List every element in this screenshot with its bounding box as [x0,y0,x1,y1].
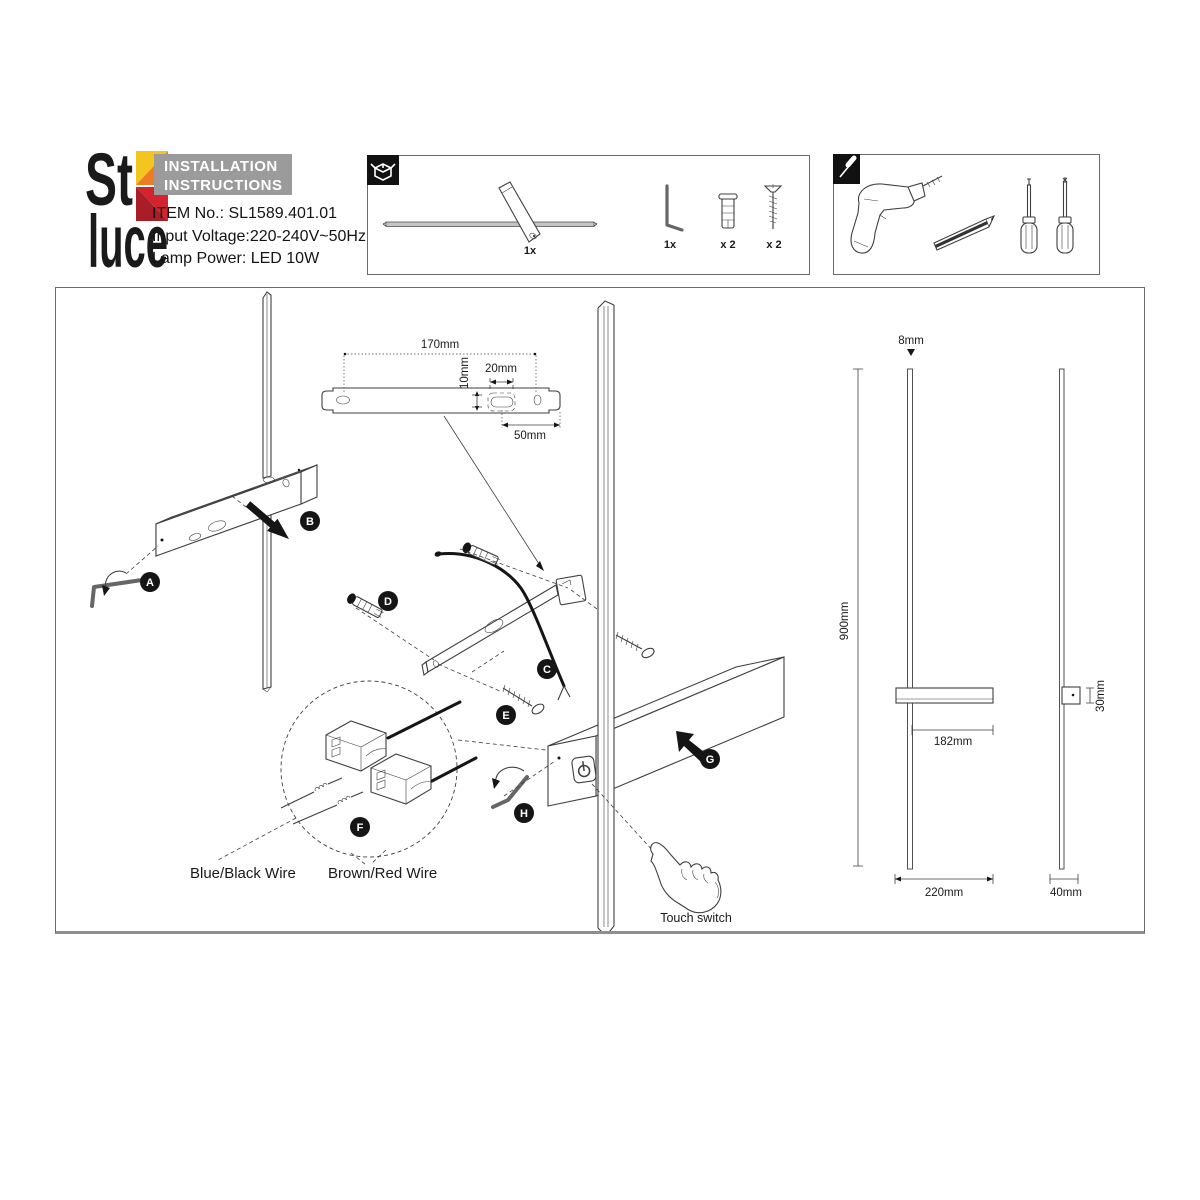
dim-hole-width: 20mm [485,363,517,375]
dim-base-height: 30mm [1095,680,1107,712]
step-marker-h: H [514,803,534,823]
step-marker-d: D [378,591,398,611]
hex-key-illustration [667,186,682,230]
dim-arm-length: 182mm [934,736,972,748]
bracket-top-view [322,388,560,413]
stripped-wires [281,778,363,824]
step-marker-c: C [537,659,557,679]
instruction-sheet: St luce INSTALLATION INSTRUCTIONS ITEM N… [0,0,1200,1200]
svg-text:F: F [357,822,364,834]
wire-connector [326,721,386,771]
installation-diagram: A B 170mm 10mm 20mm [56,288,1144,931]
svg-text:A: A [146,577,154,589]
dim-hole-to-end: 50mm [514,430,546,442]
lamp-base-housing-left [156,465,317,556]
lamp-qty: 1x [524,245,537,257]
svg-text:G: G [706,754,715,766]
hex-key-qty: 1x [664,239,677,251]
tools-required-box [833,154,1100,275]
svg-text:D: D [384,596,392,608]
pencil-illustration [934,216,994,250]
screw-qty: x 2 [766,239,781,251]
svg-text:B: B [306,516,314,528]
package-contents-drawing: 1x 1x x 2 x 2 [368,156,809,274]
item-number: ITEM No.: SL1589.401.01 [152,203,366,226]
title-banner: INSTALLATION INSTRUCTIONS [154,154,292,195]
step-marker-f: F [350,817,370,837]
wire-label-blue-black: Blue/Black Wire [190,865,296,882]
hex-key-step-h [492,761,555,807]
package-icon [367,155,399,185]
dim-bracket-length: 170mm [421,339,459,351]
phillips-screwdriver-illustration [1057,177,1073,253]
title-line1: INSTALLATION [164,157,292,176]
bracket-dimensions: 170mm 10mm 20mm 50mm [344,339,560,571]
lamp-illustration [383,182,597,242]
mounting-screw-upper [616,632,656,660]
item-info: ITEM No.: SL1589.401.01 Input Voltage:22… [152,203,366,271]
lamp-power: Lamp Power: LED 10W [152,248,366,271]
flat-screwdriver-illustration [1021,179,1037,253]
wire-label-brown-red: Brown/Red Wire [328,865,437,882]
anchor-qty: x 2 [720,239,735,251]
front-view-dimensions: 8mm 900mm 182mm 220mm [839,335,993,899]
step-marker-a: A [140,572,160,592]
step-marker-e: E [496,705,516,725]
step-marker-g: G [700,749,720,769]
dim-side-width: 40mm [1050,887,1082,899]
pointing-hand [651,843,721,913]
dim-rod-diameter: 8mm [898,335,924,347]
svg-text:H: H [520,808,528,820]
screw-illustration [765,184,781,229]
dim-total-height: 900mm [839,602,851,640]
svg-text:C: C [543,664,551,676]
tools-drawing [834,155,1099,274]
side-view-dimensions: 30mm 40mm [1050,369,1107,899]
lamp-base-housing-right [548,657,784,806]
tools-icon [833,154,860,184]
wall-anchor-lower [345,592,385,620]
main-diagram-frame: A B 170mm 10mm 20mm [55,287,1145,934]
title-line2: INSTRUCTIONS [164,176,292,195]
dim-front-width: 220mm [925,887,963,899]
lamp-rod-center [598,301,614,931]
package-contents-box: 1x 1x x 2 x 2 [367,155,810,275]
drill-illustration [851,176,942,253]
bracket-iso-view [422,575,586,675]
axis-lower [356,608,502,692]
step-marker-b: B [300,511,320,531]
dim-hole-offset: 10mm [459,357,471,389]
input-voltage: Input Voltage:220-240V~50Hz [152,226,366,249]
touch-switch-label: Touch switch [660,911,732,925]
svg-text:E: E [502,710,509,722]
wall-anchor-illustration [719,194,737,228]
